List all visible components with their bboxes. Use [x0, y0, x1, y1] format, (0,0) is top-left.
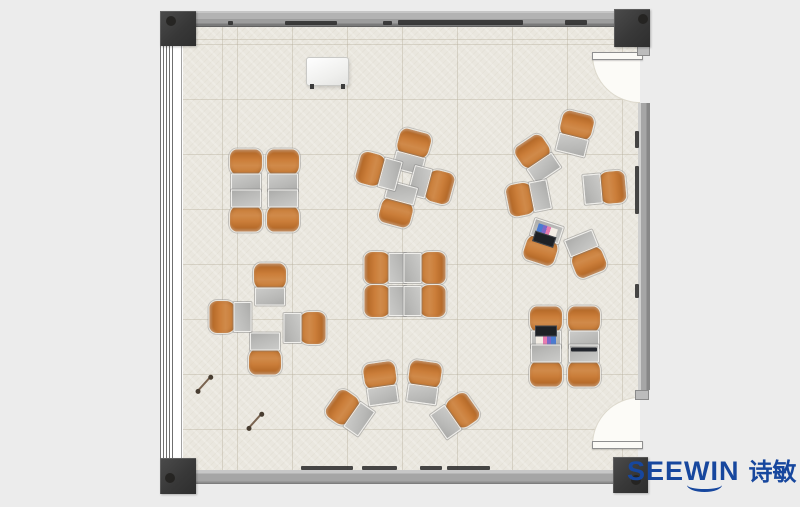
column-pillar: [160, 458, 196, 494]
desk-top-icon: [367, 384, 399, 406]
chair-desk-unit: [403, 358, 445, 406]
wall-mark: [635, 284, 639, 298]
chair-desk-unit: [582, 168, 628, 208]
chair-top-icon: [529, 360, 563, 388]
chair-top-icon: [364, 251, 392, 285]
chair-top-icon: [248, 348, 282, 376]
chair-desk-unit: [561, 228, 610, 281]
wall-mark: [635, 131, 639, 148]
wall-mark: [362, 466, 397, 470]
chair-top-icon: [253, 263, 287, 291]
wall-mark: [285, 21, 337, 25]
column-pillar: [614, 9, 650, 47]
chair-desk-unit: [528, 306, 564, 349]
chair-desk-unit: [265, 149, 301, 192]
chair-top-icon: [266, 205, 300, 233]
desk-top-icon: [582, 173, 603, 204]
chair-desk-unit: [519, 217, 567, 269]
chair-top-icon: [419, 284, 447, 318]
chair-desk-unit: [503, 176, 552, 220]
chair-top-icon: [364, 284, 392, 318]
brand-logo: SEEWIN 诗敏: [627, 452, 797, 487]
wall-mark: [301, 466, 353, 470]
floor-plan-page: SEEWIN 诗敏: [0, 0, 800, 507]
chair-desk-unit: [284, 310, 327, 346]
pen-icon: [248, 413, 263, 429]
chair-desk-unit: [528, 345, 564, 388]
laptop-open-icon: [535, 326, 557, 346]
chair-desk-unit: [364, 250, 407, 286]
chair-desk-unit: [228, 190, 264, 233]
chair-desk-unit: [404, 283, 447, 319]
pen-icon: [197, 376, 212, 392]
wall-mark: [383, 21, 392, 25]
chair-desk-unit: [404, 250, 447, 286]
desk-top-icon: [404, 286, 422, 316]
wall-mark: [228, 21, 233, 25]
brand-swoosh-icon: [687, 478, 722, 492]
laptop-closed-icon: [571, 348, 597, 352]
desk-top-icon: [404, 253, 422, 283]
chair-desk-unit: [252, 263, 288, 306]
chair-desk-unit: [265, 190, 301, 233]
chair-desk-unit: [228, 149, 264, 192]
desk-top-icon: [231, 190, 261, 208]
chair-desk-unit: [552, 108, 597, 158]
desk-top-icon: [268, 190, 298, 208]
chair-desk-unit: [360, 359, 402, 407]
chair-desk-unit: [209, 299, 252, 335]
wall-mark: [447, 466, 490, 470]
chair-top-icon: [266, 149, 300, 177]
chair-desk-unit: [566, 345, 602, 388]
desk-top-icon: [250, 333, 280, 351]
desk-top-icon: [406, 383, 438, 405]
chair-top-icon: [229, 205, 263, 233]
brand-logo-cjk: 诗敏: [749, 452, 797, 487]
plan-layer: [0, 0, 800, 507]
pillar-dot-icon: [165, 473, 175, 483]
pillar-dot-icon: [638, 14, 648, 24]
column-pillar: [160, 11, 196, 46]
pillar-dot-icon: [166, 16, 176, 26]
desk-top-icon: [255, 288, 285, 306]
chair-top-icon: [567, 360, 601, 388]
brand-logo-text: SEEWIN: [627, 456, 740, 487]
wall-mark: [635, 166, 639, 214]
chair-top-icon: [229, 149, 263, 177]
desk-top-icon: [234, 302, 252, 332]
wall-mark: [398, 20, 523, 25]
wall-mark: [420, 466, 442, 470]
chair-desk-unit: [364, 283, 407, 319]
chair-top-icon: [567, 306, 601, 334]
desk-top-icon: [531, 345, 561, 363]
wall-mark: [565, 20, 587, 25]
whiteboard: [306, 57, 349, 86]
chair-top-icon: [299, 311, 327, 345]
chair-top-icon: [209, 300, 237, 334]
desk-top-icon: [284, 313, 302, 343]
chair-top-icon: [419, 251, 447, 285]
chair-desk-unit: [566, 306, 602, 349]
chair-desk-unit: [247, 333, 283, 376]
